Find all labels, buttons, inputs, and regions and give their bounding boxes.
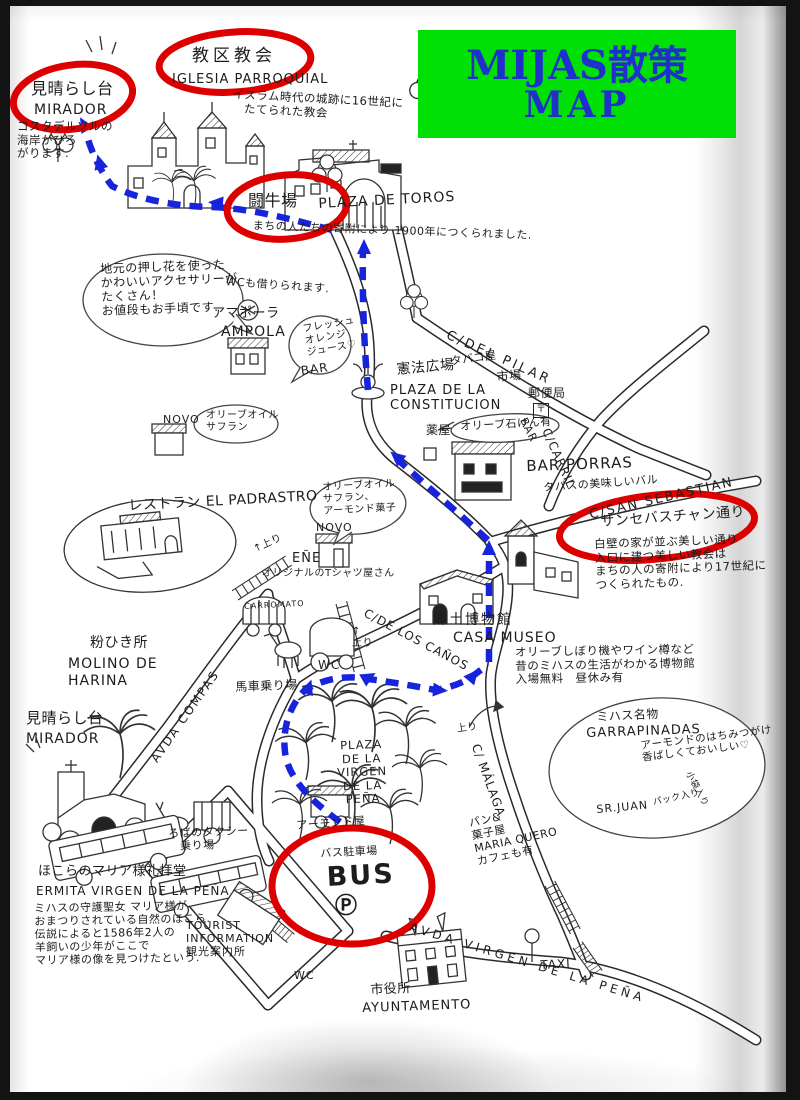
label-bar-porras: BAR PORRAS	[526, 454, 633, 475]
label-novo2: NOVO	[316, 522, 353, 535]
label-iglesia-jp: 教区教会	[192, 46, 276, 66]
label-iglesia-es: IGLESIA PARROQUIAL	[172, 72, 328, 87]
label-ampola-es: AMPOLA	[221, 324, 286, 341]
label-mirador2-es: MIRADOR	[26, 731, 99, 748]
label-roba-taxi: ろばのタクシー 乗り場	[168, 825, 249, 854]
pharmacy-drawing	[424, 448, 436, 460]
label-ampola-jp: アマポーラ	[212, 306, 280, 321]
label-bus-parking-p: Ⓟ	[335, 894, 358, 920]
map-title-line1: MIJAS散策	[466, 45, 688, 87]
label-basha: 馬車乗り場	[235, 678, 298, 694]
bar-porras-drawing	[452, 442, 514, 500]
label-shiyakusho-jp: 市役所	[370, 981, 411, 998]
label-costa-note: コスタデルソルの 海岸がひろ がります.	[17, 120, 113, 161]
label-plaza-virgen: PLAZA DE LA VIRGEN DE LA PEÑA	[322, 737, 402, 807]
label-sanseba-note: 白壁の家が並ぶ美しい通り 入口に建つ美しい教会は まちの人の寄附により17世紀に…	[594, 532, 767, 592]
label-ene: EÑE	[292, 551, 321, 566]
map-title-line2: MAP	[524, 87, 631, 123]
label-mirador-top-es: MIRADOR	[34, 102, 107, 119]
label-nobori2: ↑ 上り	[352, 626, 373, 650]
label-wc3: WC	[294, 970, 315, 983]
shop-novo1-drawing	[152, 424, 186, 455]
label-oil1-note: オリーブオイル サフラン	[206, 410, 279, 434]
label-toros-jp: 闘牛場	[248, 192, 298, 211]
label-museo-jp: 郷土博物館	[433, 612, 513, 629]
label-novo1: NOVO	[163, 414, 200, 427]
label-ermita-note: ミハスの守護聖女 マリア様が おまつりされている自然のほこら. 伝説によると15…	[34, 900, 211, 968]
label-mirador2-jp: 見晴らし台	[26, 710, 104, 728]
label-ermita-es: ERMITA VIRGEN DE LA PEÑA	[36, 884, 230, 898]
scanned-map-page: MIJAS散策 MAP 教区教会 IGLESIA PARROQUIAL イスラム…	[0, 0, 800, 1100]
label-ene-note: オリジナルのTシャツ屋さん	[262, 568, 395, 580]
label-molino-es: MOLINO DE HARINA	[68, 656, 158, 689]
label-molino-jp: 粉ひき所	[90, 635, 148, 652]
shop-ampola-drawing	[228, 338, 268, 374]
castle-church-drawing	[128, 102, 264, 208]
label-oil2-note: オリーブオイル サフラン、 アーモンド菓子	[322, 478, 397, 517]
label-kusuriya: 薬屋	[426, 423, 451, 437]
label-taxi: TAXI	[540, 956, 571, 972]
label-mirador-top-jp: 見晴らし台	[31, 80, 114, 99]
label-museo-note: オリーブしぼり機やワイン樽など 昔のミハスの生活がわかる博物館 入場無料 昼休み…	[515, 643, 696, 687]
shop-novo2-drawing	[316, 534, 352, 567]
label-wc2: WC	[318, 658, 340, 672]
label-constitucion-es: PLAZA DE LA CONSTITUCION	[390, 383, 501, 414]
label-bus-big: BUS	[326, 858, 396, 893]
map-title-box: MIJAS散策 MAP	[418, 30, 736, 138]
label-yubinkyoku: 郵便局	[528, 386, 566, 400]
label-ermita-jp: ほこらのマリア様礼拝堂	[38, 864, 187, 879]
town-hall-drawing	[395, 911, 466, 987]
label-ichiba: 市場	[496, 368, 522, 384]
